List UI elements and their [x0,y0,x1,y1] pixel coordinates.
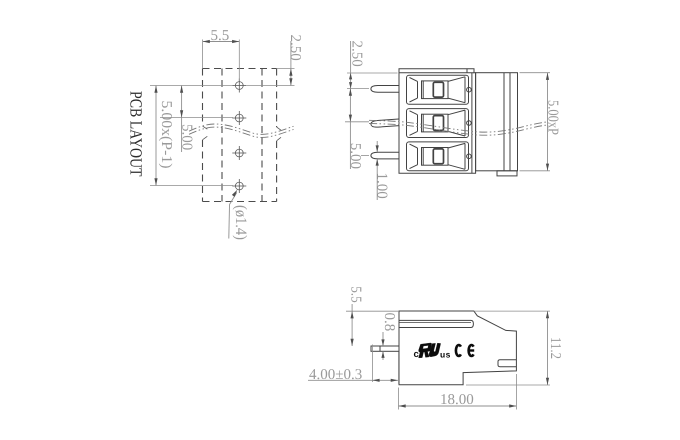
svg-text:2.50: 2.50 [287,35,303,61]
svg-text:us: us [440,349,451,359]
svg-text:5.00: 5.00 [179,124,195,150]
svg-text:c: c [414,349,419,360]
svg-text:0.8: 0.8 [381,313,397,332]
svg-text:1.00: 1.00 [374,173,390,199]
svg-text:5.00: 5.00 [347,143,363,169]
svg-text:PCB LAYOUT: PCB LAYOUT [127,91,146,177]
svg-text:5.00x(P-1): 5.00x(P-1) [158,101,174,169]
svg-text:5.5: 5.5 [347,286,363,303]
svg-text:5.00xP: 5.00xP [544,100,560,135]
svg-text:(ø1.4): (ø1.4) [232,205,249,240]
svg-text:11.2: 11.2 [547,337,563,359]
